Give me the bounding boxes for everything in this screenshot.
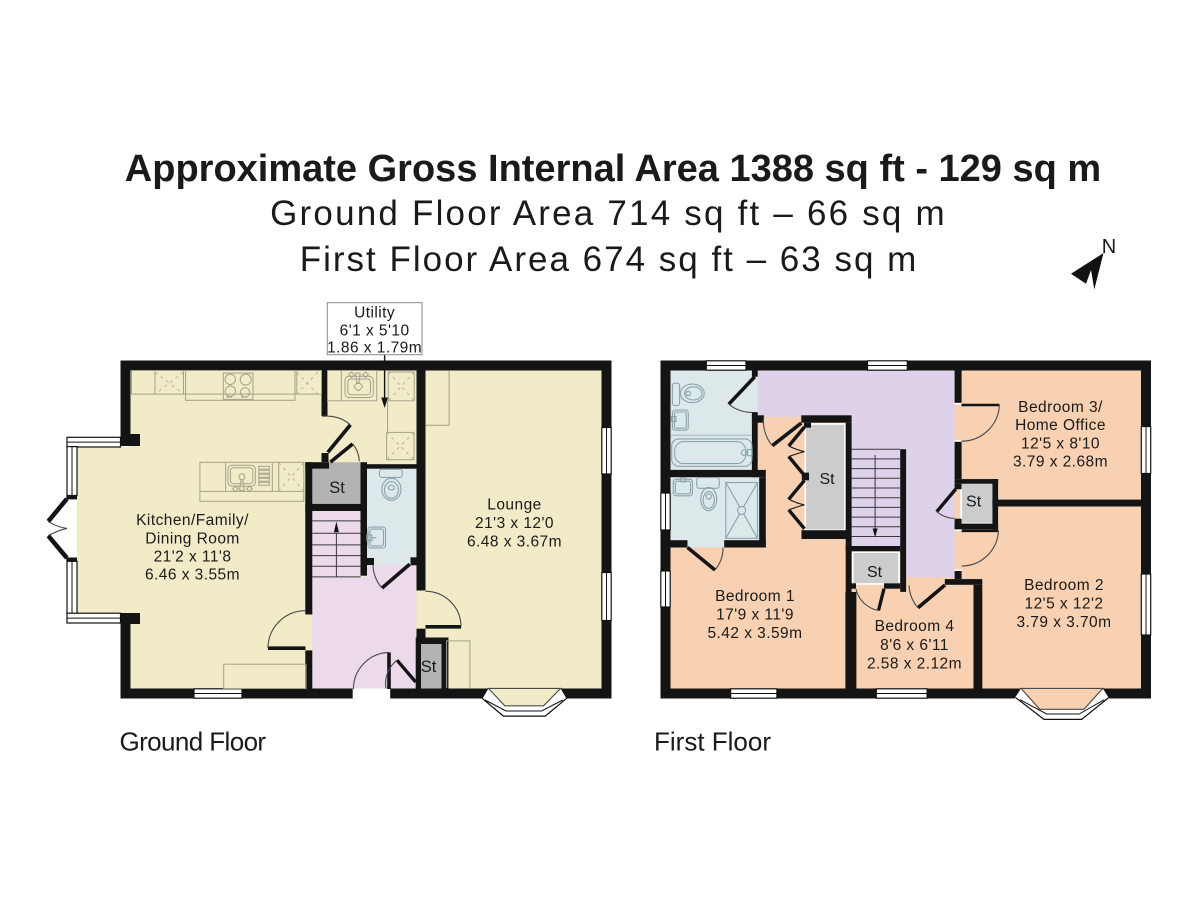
svg-text:St: St [966, 494, 982, 511]
svg-text:Utility: Utility [354, 305, 395, 322]
svg-text:St: St [329, 479, 345, 497]
svg-text:Lounge: Lounge [487, 497, 541, 514]
svg-text:8'6 x 6'11: 8'6 x 6'11 [880, 637, 949, 654]
svg-text:Dining Room: Dining Room [145, 531, 240, 548]
svg-text:21'3 x 12'0: 21'3 x 12'0 [475, 515, 554, 532]
svg-text:6.48 x 3.67m: 6.48 x 3.67m [467, 534, 562, 551]
svg-text:17'9 x 11'9: 17'9 x 11'9 [716, 607, 794, 624]
svg-text:6.46 x 3.55m: 6.46 x 3.55m [145, 567, 240, 584]
svg-text:21'2 x 11'8: 21'2 x 11'8 [154, 549, 232, 566]
svg-text:3.79 x 3.70m: 3.79 x 3.70m [1016, 614, 1111, 631]
svg-text:5.42 x 3.59m: 5.42 x 3.59m [707, 625, 802, 642]
svg-text:Bedroom 1: Bedroom 1 [715, 588, 795, 605]
svg-text:Ground Floor Area 714 sq ft –: Ground Floor Area 714 sq ft – 66 sq m [270, 194, 947, 233]
svg-text:1.86 x 1.79m: 1.86 x 1.79m [327, 340, 422, 357]
svg-text:Home Office: Home Office [1015, 417, 1106, 434]
svg-text:Bedroom 3/: Bedroom 3/ [1018, 399, 1103, 416]
svg-text:Ground Floor: Ground Floor [120, 727, 267, 757]
svg-text:12'5 x 12'2: 12'5 x 12'2 [1025, 596, 1104, 613]
svg-text:12'5 x 8'10: 12'5 x 8'10 [1021, 436, 1100, 453]
svg-text:Approximate Gross Internal Are: Approximate Gross Internal Area 1388 sq … [125, 148, 1101, 190]
svg-text:6'1 x 5'10: 6'1 x 5'10 [340, 323, 410, 340]
svg-text:N: N [1102, 236, 1116, 258]
svg-text:3.79 x 2.68m: 3.79 x 2.68m [1013, 454, 1108, 471]
svg-text:Bedroom 4: Bedroom 4 [875, 618, 955, 635]
svg-text:Bedroom 2: Bedroom 2 [1024, 577, 1104, 594]
svg-text:Kitchen/Family/: Kitchen/Family/ [136, 512, 249, 529]
svg-text:2.58 x 2.12m: 2.58 x 2.12m [867, 656, 962, 673]
svg-text:St: St [819, 471, 835, 488]
svg-text:St: St [867, 564, 883, 581]
svg-text:First Floor Area 674 sq ft – 6: First Floor Area 674 sq ft – 63 sq m [300, 240, 919, 279]
svg-text:St: St [421, 658, 437, 676]
svg-text:First Floor: First Floor [654, 727, 771, 757]
